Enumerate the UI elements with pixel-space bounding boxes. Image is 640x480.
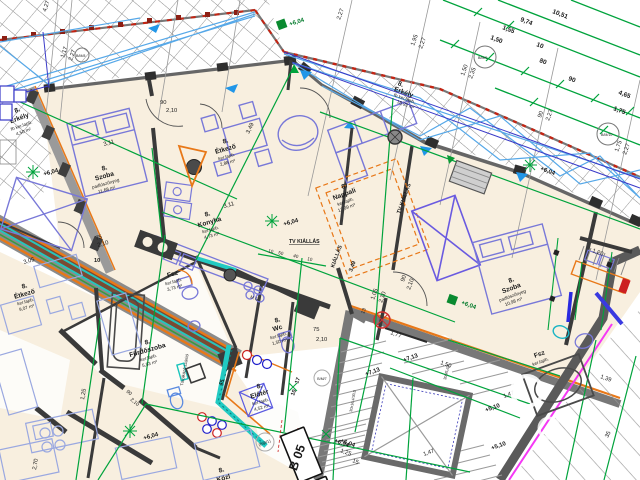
svg-text:90: 90 bbox=[160, 100, 166, 106]
svg-text:2,10: 2,10 bbox=[166, 108, 177, 114]
svg-text:2,10: 2,10 bbox=[316, 337, 327, 343]
svg-text:TV KIÁLLÁS: TV KIÁLLÁS bbox=[289, 238, 320, 245]
svg-text:B/M/9: B/M/9 bbox=[478, 56, 487, 60]
svg-text:B/M/10: B/M/10 bbox=[601, 133, 612, 137]
svg-text:B/M/7: B/M/7 bbox=[317, 377, 326, 381]
svg-text:75: 75 bbox=[313, 327, 319, 333]
svg-text:10: 10 bbox=[94, 258, 100, 264]
svg-text:B/M/8: B/M/8 bbox=[76, 54, 85, 58]
